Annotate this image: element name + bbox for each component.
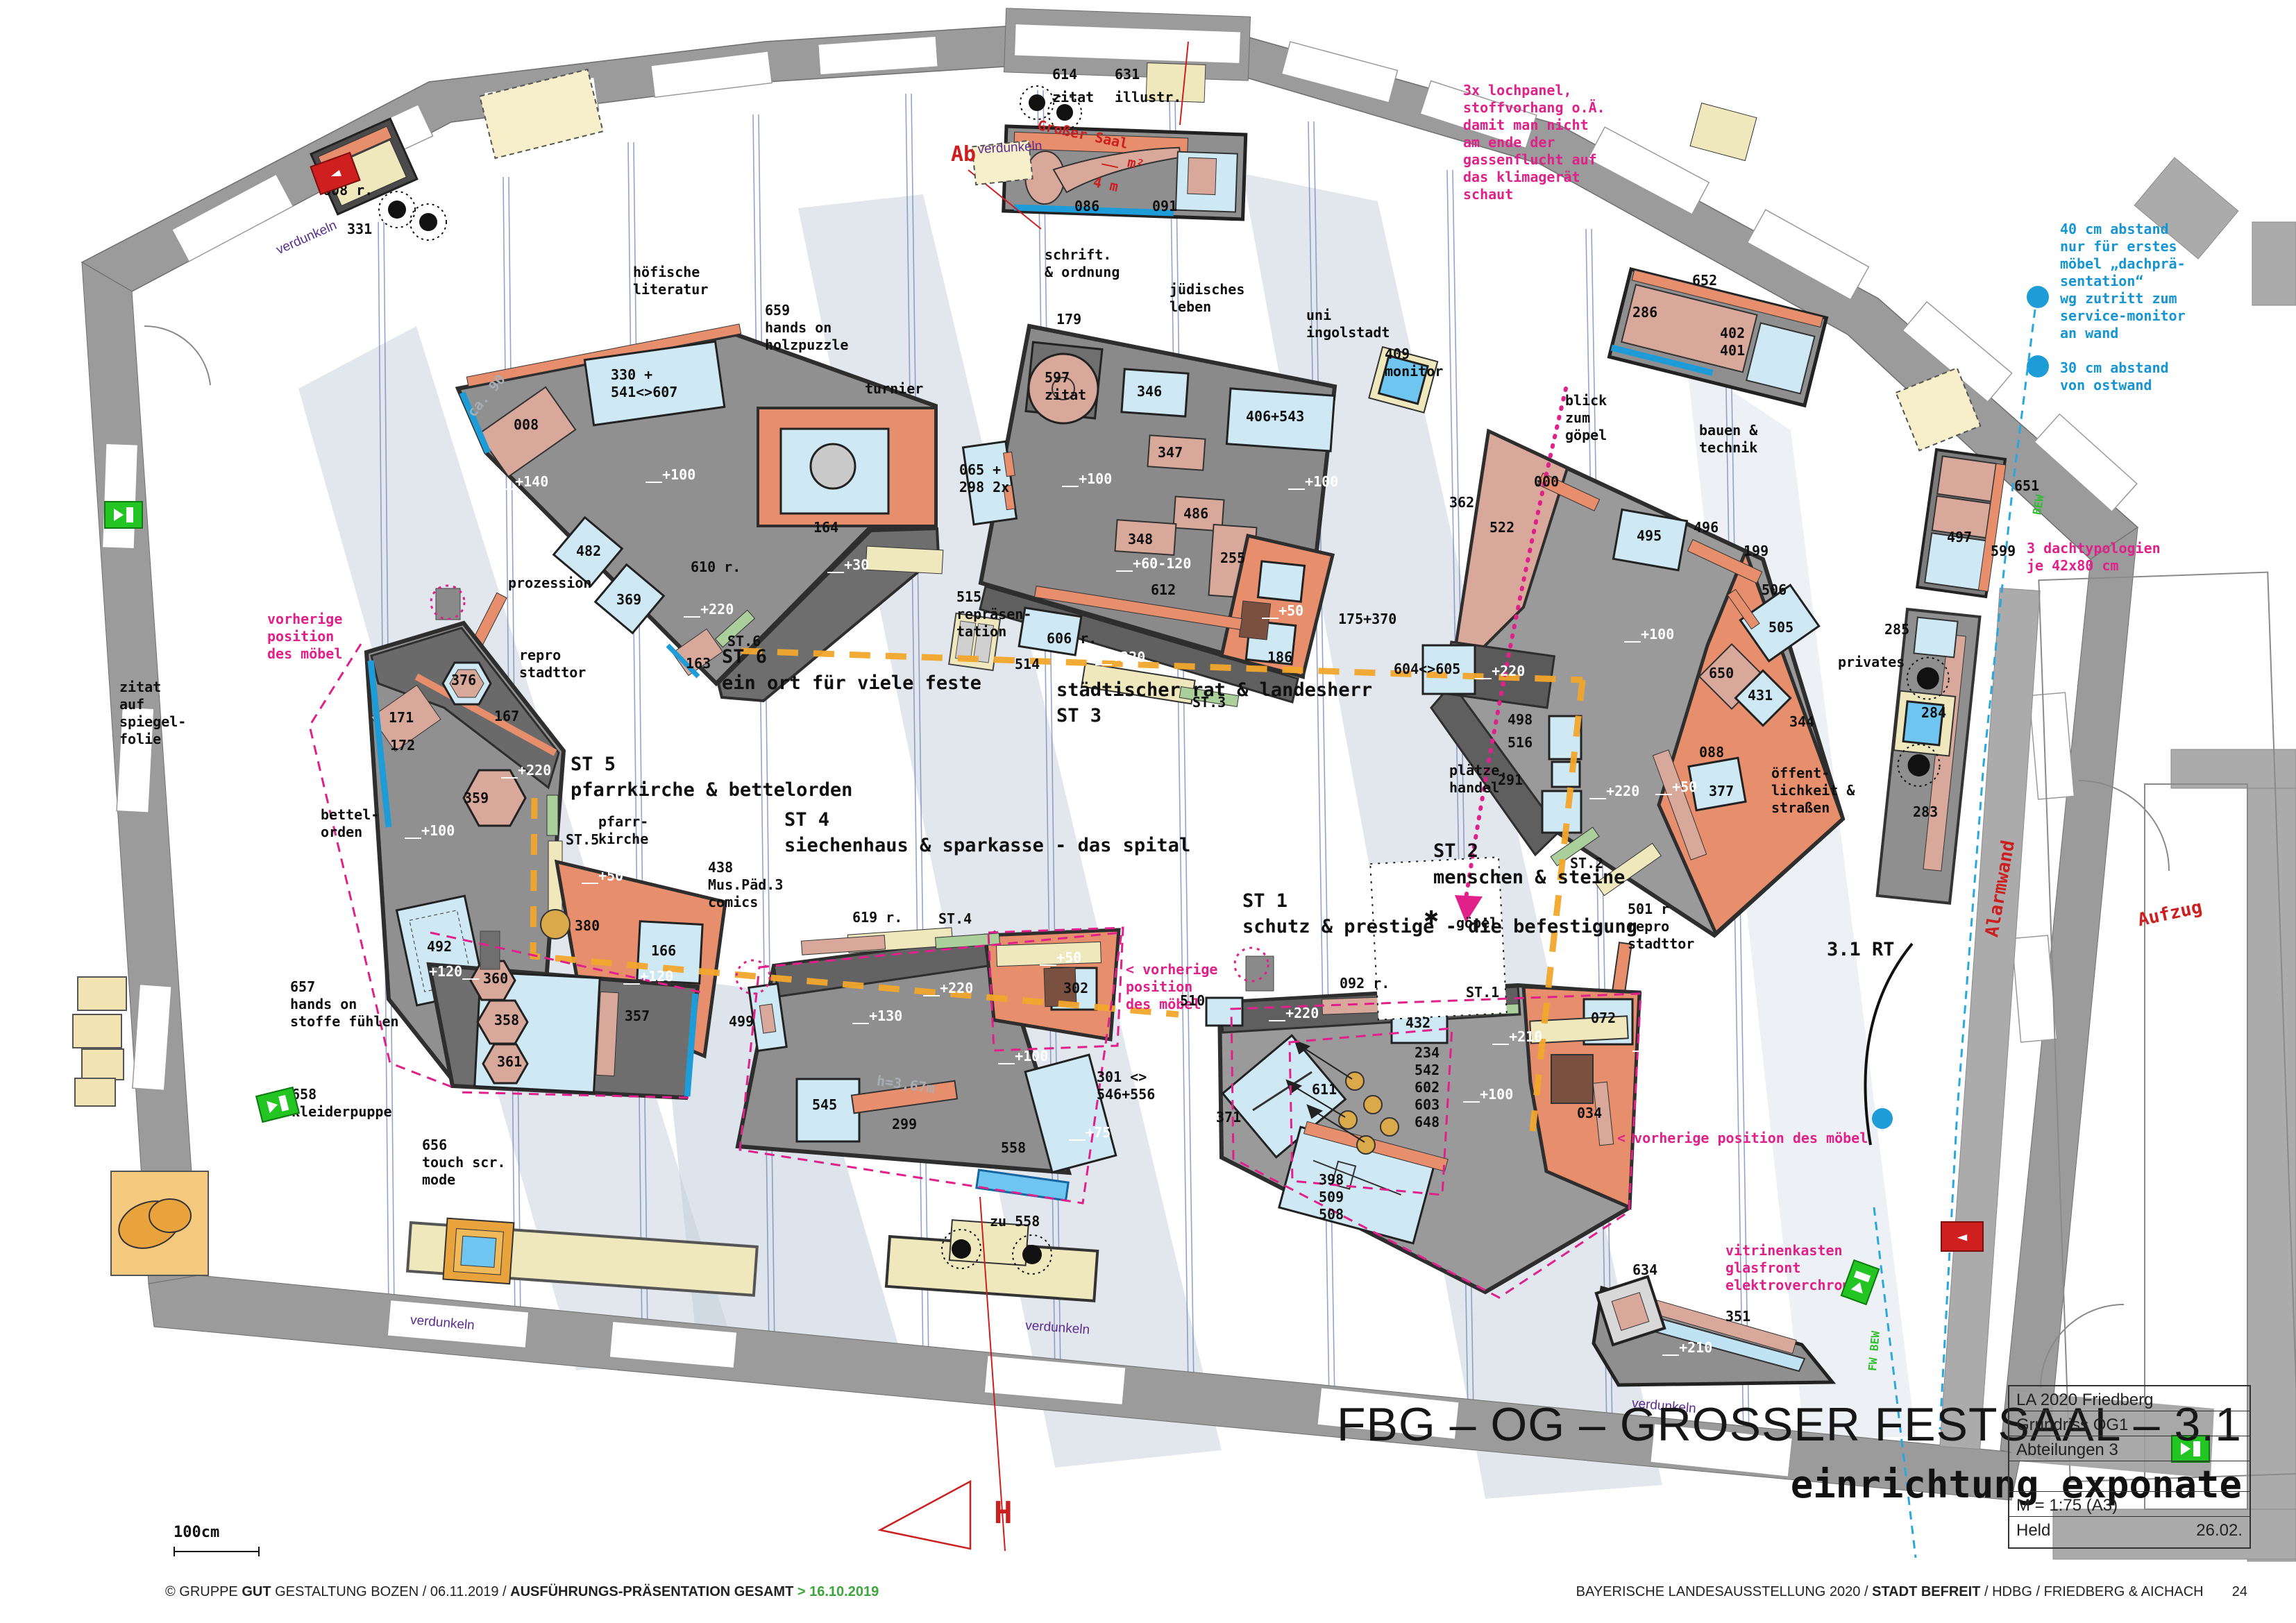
exit-man-icon [1851, 1280, 1866, 1293]
station-2-title: ST 2 [1433, 840, 1478, 863]
exhibit-299: 299 [892, 1116, 917, 1133]
exhibit-631: 631 [1115, 66, 1140, 83]
exhibit-285: 285 [1884, 621, 1909, 638]
exhibit-495: 495 [1637, 527, 1662, 545]
label-657-stoffe: 657 hands on stoffe fühlen [290, 978, 399, 1030]
label-bettelorden: bettel- orden [321, 806, 379, 841]
exhibit-167: 167 [494, 708, 519, 725]
footer-studio: GUT [242, 1584, 271, 1599]
footer-exhibition-name: STADT BEFREIT [1872, 1584, 1980, 1599]
goepel-asterisk: ✱ [1424, 908, 1438, 925]
emergency-exit-icon [104, 501, 143, 529]
exhibit-163: 163 [686, 655, 711, 672]
exhibit-371: 371 [1216, 1109, 1241, 1126]
exhibit-199: 199 [1744, 543, 1769, 560]
exhibit-351: 351 [1725, 1308, 1750, 1325]
exhibit-171: 171 [389, 709, 414, 726]
exhibit-088: 088 [1699, 744, 1724, 761]
label-juedisches-leben: jüdisches leben [1170, 281, 1244, 316]
label-hoefische-literatur: höfische literatur [633, 264, 708, 298]
exhibit-634: 634 [1632, 1261, 1657, 1279]
label-oeffentlichkeit: öffent- lichkeit & straßen [1771, 765, 1855, 817]
footer-sep: / [2036, 1584, 2040, 1599]
height-100-st3b: __+100 [1288, 473, 1338, 491]
exhibit-498: 498 [1508, 711, 1533, 729]
exhibit-482: 482 [576, 543, 601, 560]
label-409-monitor: 409 monitor [1385, 346, 1443, 380]
footer-org: HDBG [1992, 1584, 2032, 1599]
height-100-st3a: __+100 [1062, 470, 1112, 488]
exhibit-359: 359 [464, 790, 489, 807]
label-blick-zum-goepel: blick zum göpel [1565, 392, 1607, 444]
exhibit-496: 496 [1694, 519, 1719, 536]
exhibit-619: 619 r. [852, 909, 902, 926]
station-3-title: städtischer rat & landesherr [1056, 679, 1372, 702]
scale-bar: 100cm [174, 1524, 260, 1556]
exhibit-402-401: 402 401 [1720, 325, 1745, 359]
exhibit-283: 283 [1913, 804, 1938, 821]
height-100-st4: __+100 [998, 1048, 1048, 1065]
exhibit-348: 348 [1128, 531, 1153, 548]
height-210-vitrine: __+210 [1662, 1339, 1712, 1357]
height-130: __+130 [852, 1008, 902, 1025]
label-goepel: göpel [1456, 915, 1498, 932]
height-30: __+30 [827, 556, 869, 574]
label-repro-stadttor: repro stadttor [519, 647, 586, 681]
exhibit-175-370: 175+370 [1338, 611, 1396, 628]
station-5-subtitle: pfarrkirche & bettelorden [571, 779, 852, 802]
floor-plan-page: 614 zitat 631 illustr. 086 091 Ab Großer… [0, 0, 2296, 1623]
exhibit-406-543: 406+543 [1246, 408, 1304, 425]
height-50-st2: __+50 [1655, 779, 1697, 796]
height-220-st5: __+220 [501, 762, 551, 779]
label-438-comics: 438 Mus.Päd.3 comics [708, 859, 783, 911]
height-140: __+140 [498, 473, 548, 491]
exhibit-650: 650 [1709, 665, 1734, 682]
footer-studio-rest: GESTALTUNG BOZEN [271, 1584, 419, 1599]
exhibit-360: 360 [483, 970, 508, 987]
exhibit-034: 034 [1577, 1105, 1602, 1122]
footer-date: 06.11.2019 [430, 1584, 499, 1599]
exhibit-164: 164 [813, 519, 838, 536]
footer-sep: / [503, 1584, 507, 1599]
exhibit-376: 376 [451, 672, 476, 689]
title-block-date: 26.02. [2196, 1521, 2243, 1540]
label-501-repro-stadttor: 501 r repro stadttor [1628, 901, 1694, 953]
footer-page-number: 24 [2232, 1584, 2247, 1599]
exhibit-522: 522 [1489, 519, 1514, 536]
exhibit-497: 497 [1947, 529, 1972, 546]
station-6-subtitle: ein ort für viele feste [722, 672, 981, 695]
footer-revision-date: > 16.10.2019 [797, 1584, 879, 1599]
footer-exhibition: BAYERISCHE LANDESAUSSTELLUNG 2020 [1576, 1584, 1861, 1599]
height-100-st1: __+100 [1463, 1086, 1513, 1103]
height-75: __+75 [1069, 1124, 1111, 1141]
exhibit-347: 347 [1158, 444, 1183, 461]
height-210-st1: __+210 [1492, 1028, 1542, 1046]
exhibit-286: 286 [1632, 304, 1657, 321]
exhibit-344: 344 [1789, 713, 1814, 731]
height-100-st6: __+100 [645, 466, 695, 484]
exhibit-486: 486 [1183, 505, 1208, 522]
height-220-st4: __+220 [923, 980, 973, 997]
note-vitrinenkasten: vitrinenkasten glasfront elektroverchrom… [1725, 1242, 1859, 1294]
exit-door-icon [126, 507, 133, 522]
exit-man-icon [267, 1098, 279, 1113]
height-220-st3: __+220 [1095, 649, 1145, 666]
exhibit-list-234-648: 234 542 602 603 648 [1415, 1044, 1440, 1131]
exhibit-597: 597 zitat [1045, 369, 1086, 404]
label-plaetze-handel: plätze, handel [1449, 762, 1508, 797]
height-50-st4: __+50 [1040, 949, 1081, 967]
footer-doc-title: AUSFÜHRUNGS-PRÄSENTATION GESAMT [510, 1584, 793, 1599]
exhibit-506: 506 [1762, 581, 1787, 599]
exhibit-358: 358 [494, 1012, 519, 1029]
label-turnier: turnier [865, 380, 923, 398]
hydrant-h-marker: H [994, 1504, 1013, 1522]
exhibit-179: 179 [1056, 311, 1081, 328]
height-50-st1: __+50 [1632, 1035, 1674, 1053]
exhibit-284: 284 [1921, 704, 1946, 722]
height-120-b: __+120 [623, 968, 673, 985]
exhibit-614-label: zitat [1052, 89, 1094, 106]
exhibit-432: 432 [1406, 1014, 1430, 1032]
label-prozession: prozession [508, 575, 591, 592]
station-4-title: ST 4 [784, 808, 829, 832]
footer-left: © GRUPPE GUT GESTALTUNG BOZEN / 06.11.20… [165, 1584, 879, 1600]
height-220-st2b: __+220 [1589, 783, 1639, 800]
label-658-kleiderpuppe: 658 kleiderpuppe [292, 1086, 392, 1121]
label-schrift-ordnung: schrift. & ordnung [1045, 246, 1120, 281]
exhibit-186: 186 [1267, 649, 1292, 666]
scale-bar-line [174, 1547, 260, 1556]
exhibit-558: 558 [1001, 1139, 1026, 1157]
exhibit-086: 086 [1074, 198, 1099, 215]
exhibit-301-546: 301 <> 546+556 [1097, 1069, 1155, 1103]
height-50-st3: __+50 [1262, 602, 1303, 620]
exhibit-091: 091 [1152, 198, 1177, 215]
exhibit-611: 611 [1312, 1081, 1337, 1098]
exhibit-346: 346 [1137, 383, 1162, 400]
exhibit-166: 166 [651, 942, 676, 960]
station-1-title: ST 1 [1242, 890, 1288, 913]
footer-sep: / [1864, 1584, 1868, 1599]
height-220-st1: __+220 [1269, 1005, 1319, 1022]
note-lochpanel: 3x lochpanel, stoffvorhang o.Ä. damit ma… [1463, 82, 1605, 203]
exhibit-516: 516 [1508, 734, 1533, 751]
footer-cities: FRIEDBERG & AICHACH [2044, 1584, 2204, 1599]
exhibit-431: 431 [1748, 687, 1773, 704]
escape-route-sign-icon: ◄ [1941, 1221, 1984, 1252]
label-pfarrkirche: pfarr- kirche [598, 813, 648, 848]
title-block: LA 2020 Friedberg Grundriss OG1 Abteilun… [2008, 1385, 2251, 1549]
exhibit-361: 361 [497, 1053, 522, 1071]
station-5-title: ST 5 [571, 753, 616, 776]
exhibit-302: 302 [1063, 980, 1088, 997]
title-block-meta: Held 26.02. [2009, 1517, 2249, 1540]
exhibit-610: 610 r. [691, 559, 741, 576]
exhibit-008: 008 [514, 416, 539, 434]
exhibit-510: 510 [1180, 992, 1205, 1010]
note-30cm-abstand: 30 cm abstand von ostwand [2060, 359, 2169, 394]
exhibit-357: 357 [625, 1008, 650, 1025]
exhibit-631-label: illustr. [1115, 89, 1181, 106]
exhibit-362: 362 [1449, 494, 1474, 511]
exhibit-255: 255 [1220, 550, 1245, 567]
exhibit-492: 492 [427, 938, 452, 955]
footer-right: BAYERISCHE LANDESAUSSTELLUNG 2020 / STAD… [1576, 1584, 2247, 1600]
exhibit-614: 614 [1052, 66, 1077, 83]
exhibit-612: 612 [1151, 581, 1176, 599]
exhibit-606: 606 r. [1047, 630, 1097, 647]
label-zitat-spiegelfolie: zitat auf spiegel- folie [119, 679, 186, 748]
note-40cm-abstand: 40 cm abstand nur für erstes möbel „dach… [2060, 221, 2186, 342]
title-block-scale: M = 1:75 (A3) [2009, 1492, 2249, 1517]
note-dachtypologien: 3 dachtypologien je 42x80 cm [2027, 540, 2161, 575]
height-220-st2a: __+220 [1475, 663, 1525, 680]
exhibit-000: 000 [1534, 473, 1559, 491]
label-bauen-technik: bauen & technik [1699, 422, 1757, 457]
exhibit-172: 172 [390, 737, 415, 754]
exhibit-092: 092 r. [1340, 975, 1390, 992]
footer-copyright: © GRUPPE [165, 1584, 242, 1599]
exhibit-369: 369 [616, 591, 641, 609]
exhibit-330-541: 330 + 541<>607 [611, 366, 677, 401]
exhibit-331: 331 [347, 221, 372, 238]
label-privates: privates [1838, 654, 1905, 671]
label-515-repraesentation: 515 repräsen- tation [956, 588, 1031, 640]
station-3-number: ST 3 [1056, 704, 1101, 728]
station-2-subtitle: menschen & steine [1433, 866, 1625, 890]
exhibit-652: 652 [1692, 272, 1717, 289]
station-4-subtitle: siechenhaus & sparkasse - das spital [784, 834, 1190, 858]
station-6-title: ST 6 [722, 645, 767, 669]
station-1-subtitle: schutz & prestige - die befestigung [1242, 915, 1637, 939]
scale-bar-label: 100cm [174, 1524, 260, 1541]
title-block-spacer [2009, 1461, 2249, 1492]
exhibit-065-298: 065 + 298 2x [959, 461, 1009, 496]
title-block-plan: Grundriss OG1 [2009, 1411, 2249, 1436]
exhibit-604-605: 604<>605 [1394, 661, 1460, 678]
strip-st5: ST.5 [566, 831, 599, 849]
title-block-project: LA 2020 Friedberg [2009, 1386, 2249, 1411]
footer-sep: / [423, 1584, 427, 1599]
exhibit-505: 505 [1769, 619, 1793, 636]
exhibit-377: 377 [1709, 783, 1734, 800]
exhibit-list-398-508: 398 509 508 [1319, 1171, 1344, 1223]
exhibit-499: 499 [729, 1013, 754, 1030]
height-120-a: +120__ [429, 963, 479, 980]
exhibit-651: 651 [2014, 477, 2039, 495]
strip-st1: ST.1 [1466, 984, 1499, 1001]
label-656-touchscreen: 656 touch scr. mode [422, 1137, 505, 1189]
exhibit-514: 514 [1015, 656, 1040, 673]
exhibit-380: 380 [575, 917, 600, 935]
ab-marker: Ab [951, 146, 976, 163]
exit-man-icon [114, 509, 124, 521]
strip-st4: ST.4 [938, 910, 972, 928]
height-50-st5: __+50 [582, 867, 623, 885]
label-zu-558: zu 558 [990, 1213, 1040, 1230]
label-31-rt: 3.1 RT [1827, 938, 1895, 962]
note-prev-position-bottom: < vorherige position des möbel [1617, 1130, 1868, 1147]
exhibit-599: 599 [1991, 543, 2016, 560]
title-block-author: Held [2016, 1521, 2050, 1540]
exit-door-icon [278, 1095, 289, 1112]
height-60-120: __+60-120 [1116, 555, 1191, 572]
height-100-st2: __+100 [1624, 626, 1674, 643]
label-uni-ingolstadt: uni ingolstadt [1306, 307, 1390, 341]
exhibit-545: 545 [812, 1096, 837, 1114]
height-220-st6: __+220 [684, 601, 734, 618]
label-659-holzpuzzle: 659 hands on holzpuzzle [765, 302, 848, 354]
footer-sep: / [1984, 1584, 1989, 1599]
exhibit-072: 072 [1591, 1010, 1616, 1027]
height-100-st5: __+100 [405, 822, 455, 840]
note-prev-position-left: vorherige position des möbel [267, 611, 342, 663]
title-block-section: Abteilungen 3 [2009, 1436, 2249, 1461]
